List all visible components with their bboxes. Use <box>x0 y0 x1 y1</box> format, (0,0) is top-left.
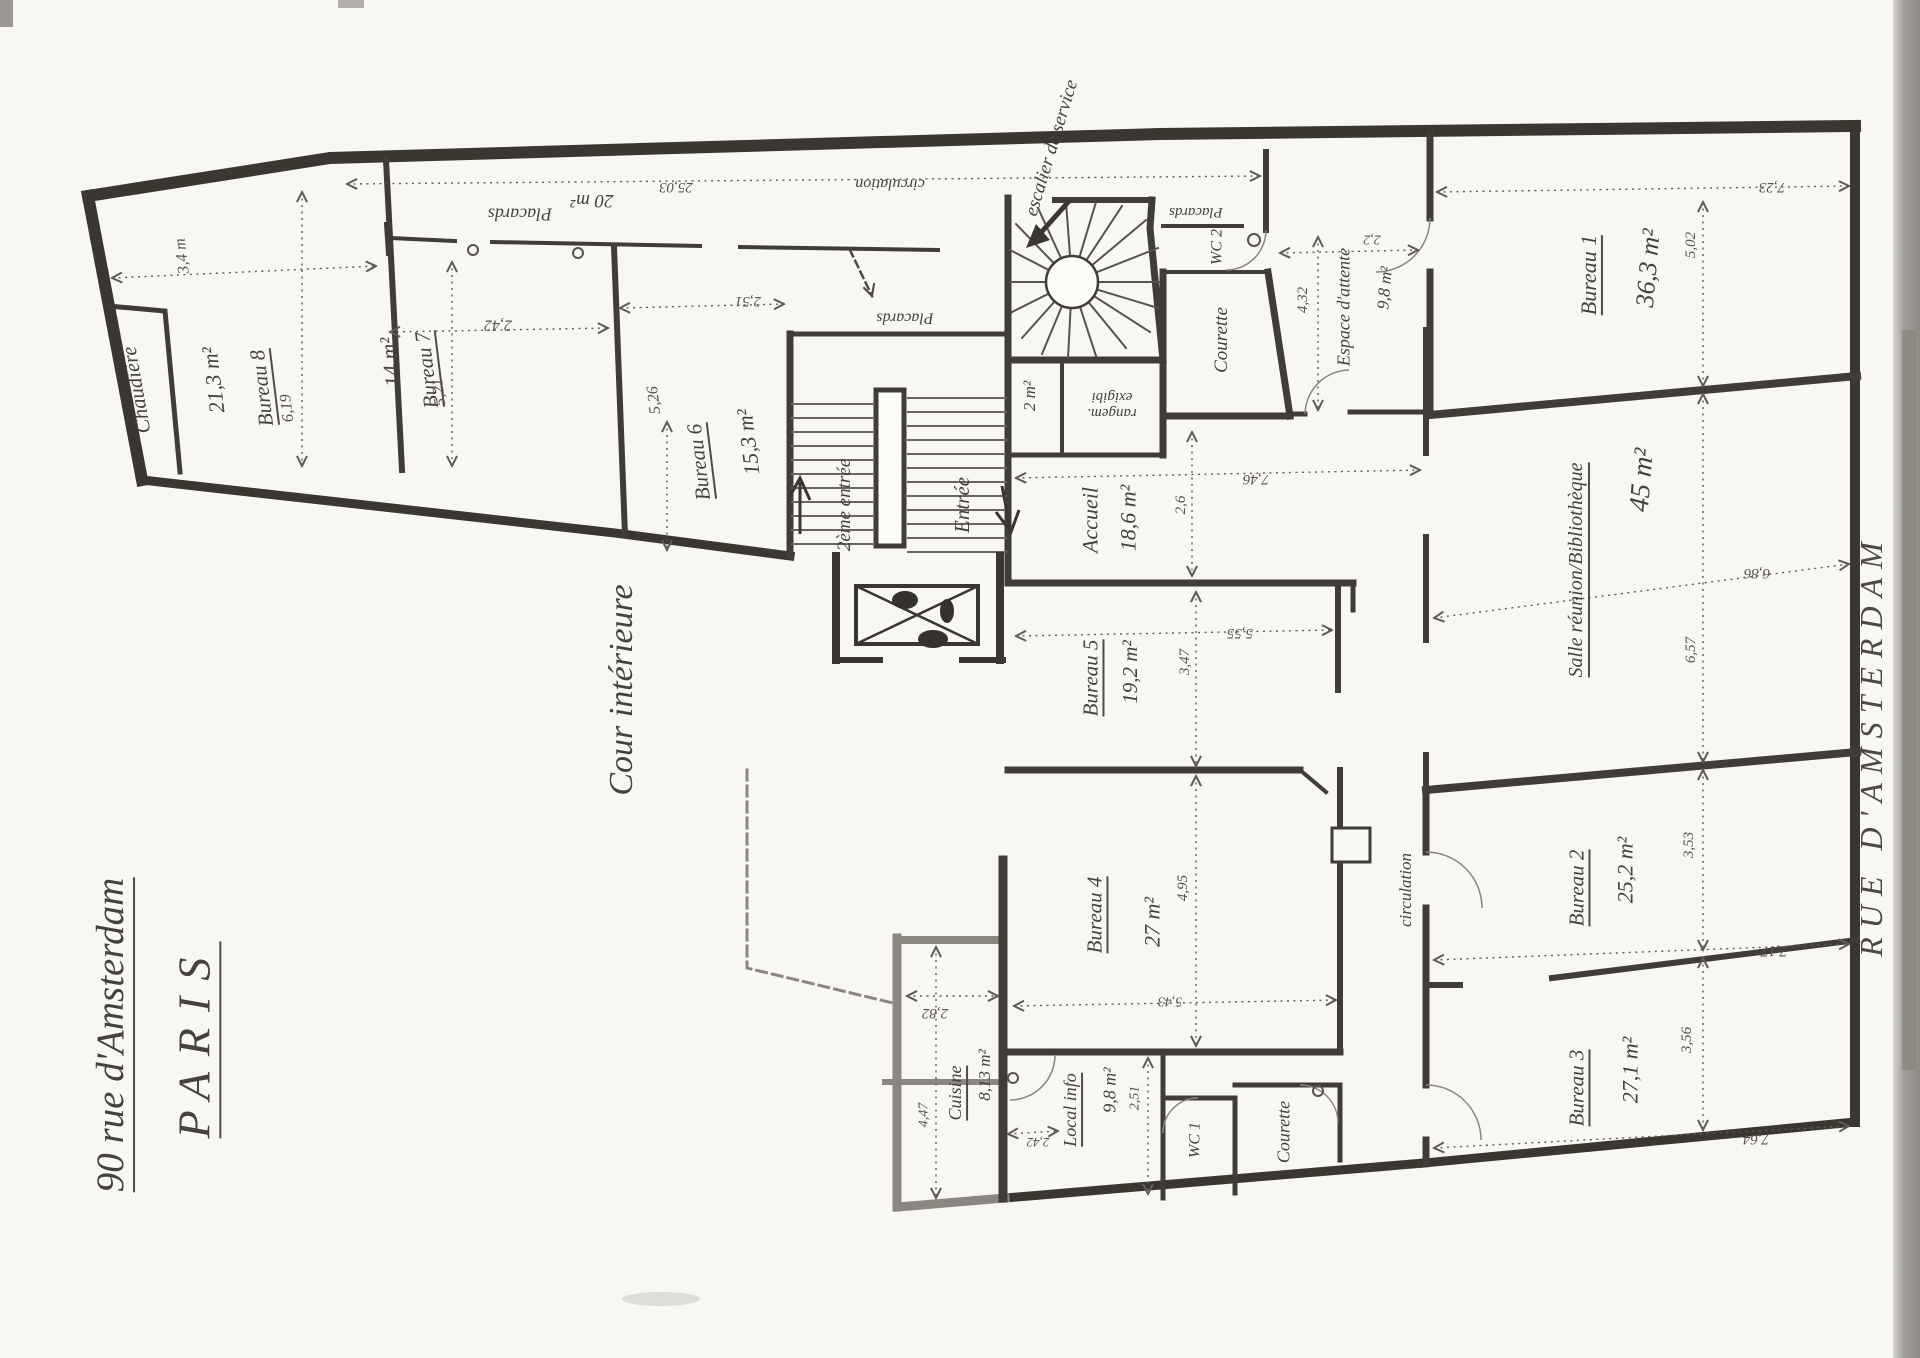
top-right-door-arcs <box>1226 218 1430 414</box>
plan-title-city: PARIS <box>170 942 221 1139</box>
room-label-courette-haut: Courette <box>1212 307 1232 373</box>
dim-5-43: 5,43 <box>1158 993 1183 1008</box>
scan-speck-top <box>338 0 364 8</box>
dim-6-57: 6,57 <box>1684 637 1700 663</box>
courtyard-window-walls <box>747 770 1005 1207</box>
street-name-label: RUE D'AMSTERDAM <box>1855 533 1889 957</box>
room-area-bureau2: 25,2 m² <box>1613 837 1636 903</box>
dim-7-23: 7,23 <box>1759 178 1785 194</box>
dim-7-17: 7,17 <box>1761 942 1787 958</box>
scan-edge-dark-streak <box>1902 330 1916 1070</box>
room-label-salle-reunion: Salle réunion/Bibliothèque <box>1566 463 1590 678</box>
dim-2-51b: 2,51 <box>1129 1086 1144 1111</box>
floor-plan-drawing <box>0 0 1920 1358</box>
top-right-walls <box>1163 134 1857 455</box>
circulation-top-label: circulation <box>855 175 925 192</box>
room-label-bureau2: Bureau 2 <box>1565 850 1590 927</box>
circulation-middle-label: circulation <box>1397 853 1415 927</box>
room-area-bureau5: 19,2 m² <box>1119 640 1141 703</box>
dim-25-03: 25,03 <box>659 178 693 194</box>
scan-speck-top-left <box>0 0 13 27</box>
middle-block-walls <box>1003 360 1370 1198</box>
room-label-bureau1: Bureau 1 <box>1577 235 1603 315</box>
room-label-rangement: rangem. exigibi <box>1087 388 1137 420</box>
dim-7-46: 7,46 <box>1243 470 1269 486</box>
room-area-bureau1: 36,3 m² <box>1631 228 1665 309</box>
right-block-door-arcs <box>1426 852 1482 1140</box>
plan-title-address: 90 rue d'Amsterdam <box>91 878 135 1193</box>
entrance-secondary-label: 2ème entrée <box>835 459 855 551</box>
dim-5-21: 5,21 <box>430 377 450 407</box>
room-area-bureau3: 27,1 m² <box>1618 1037 1641 1103</box>
room-label-placards-palier: Placards <box>876 309 933 326</box>
room-area-local-info: 9,8 m² <box>1101 1067 1120 1112</box>
dimension-lines <box>112 176 1849 1198</box>
pencil-smudge <box>622 1292 700 1306</box>
room-area-accueil: 18,6 m² <box>1116 485 1139 551</box>
room-area-bureau4: 27 m² <box>1140 897 1163 947</box>
room-area-espace-attente: 9,8 m² <box>1374 266 1396 310</box>
room-label-placards-couloir: Placards <box>488 205 552 224</box>
courtyard-label: Cour intérieure <box>604 584 640 795</box>
entrance-main-label: Entrée <box>951 477 973 533</box>
dim-4-95: 4,95 <box>1176 875 1192 901</box>
rangement-line1: rangem. <box>1087 405 1137 421</box>
dim-2-42b: 2,42 <box>1027 1135 1050 1149</box>
dim-4-47: 4,47 <box>918 1103 933 1128</box>
dim-6-86: 6,86 <box>1744 564 1770 580</box>
dim-5-55: 5,55 <box>1227 624 1253 640</box>
room-label-accueil: Accueil <box>1078 487 1101 553</box>
room-label-courette-bas: Courette <box>1275 1101 1294 1163</box>
room-label-bureau4: Bureau 4 <box>1083 877 1108 954</box>
room-area-salle-reunion: 45 m² <box>1625 447 1660 513</box>
dim-3-53: 3,53 <box>1682 832 1698 858</box>
room-label-bureau3: Bureau 3 <box>1565 1050 1590 1127</box>
dim-5-02: 5,02 <box>1684 232 1700 258</box>
room-area-cuisine: 8,13 m² <box>976 1049 994 1100</box>
dim-4-32: 4,32 <box>1296 287 1312 313</box>
room-label-wc2: WC 2 <box>1210 229 1227 265</box>
dim-2-82: 2,82 <box>922 1004 948 1020</box>
room-area-bureau7: 14 m² <box>375 336 404 388</box>
dim-3-56: 3,56 <box>1680 1027 1696 1053</box>
dim-5-26: 5,26 <box>645 385 665 415</box>
entrance-vestibule <box>836 556 1003 660</box>
dim-2-6: 2,6 <box>1174 496 1190 515</box>
dim-2-42: 2,42 <box>484 316 512 333</box>
floor-plan-scan: 90 rue d'Amsterdam PARIS RUE D'AMSTERDAM… <box>0 0 1920 1358</box>
room-label-cuisine: Cuisine <box>946 1065 968 1120</box>
rangement-line2: exigibi <box>1092 389 1133 405</box>
dim-7-64: 7,64 <box>1743 1130 1769 1146</box>
room-label-bureau5: Bureau 5 <box>1079 640 1104 717</box>
room-label-placards-service: Placards <box>1169 203 1223 219</box>
room-area-placards-couloir: 20 m² <box>570 190 613 210</box>
dim-6-19: 6,19 <box>278 393 298 423</box>
service-spiral-staircase <box>1008 198 1163 360</box>
room-label-wc1: WC 1 <box>1188 1122 1205 1158</box>
dim-2-2: 2,2 <box>1363 231 1381 246</box>
main-staircase <box>790 250 1008 583</box>
room-label-local-info: Local info <box>1061 1073 1083 1147</box>
room-area-rangement-2m2: 2 m² <box>1021 381 1039 411</box>
dim-3-47: 3,47 <box>1178 649 1194 675</box>
room-label-espace-attente: Espace d'attente <box>1335 248 1354 366</box>
dim-2-51: 2,51 <box>735 292 761 308</box>
